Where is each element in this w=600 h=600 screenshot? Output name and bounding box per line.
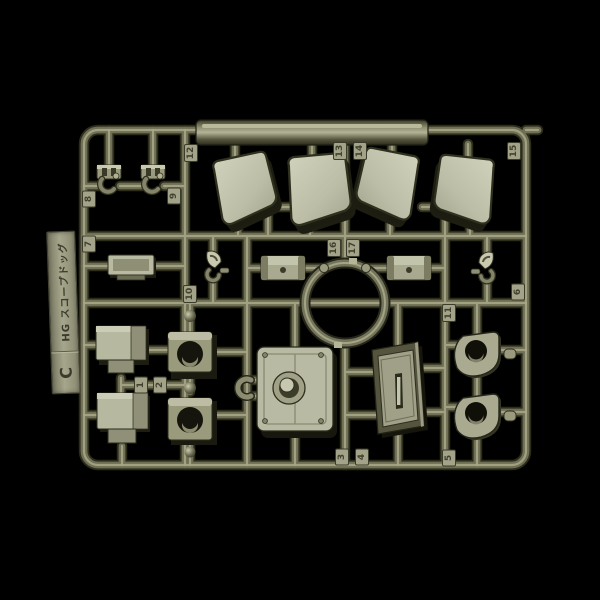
part-number-tag-9: 9 xyxy=(168,188,181,204)
dome-cover-part-2 xyxy=(454,394,516,440)
part-number-tag-2: 2 xyxy=(154,377,167,393)
part-number-tag-16: 16 xyxy=(328,240,341,257)
part-number-tag-10: 10 xyxy=(184,286,197,303)
part-number-tag-7: 7 xyxy=(83,236,96,252)
part-number-tag-8: 8 xyxy=(83,191,96,207)
part-number-tag-13: 13 xyxy=(334,143,347,160)
part-number-tag-6: 6 xyxy=(512,284,525,300)
svg-text:12: 12 xyxy=(186,147,196,160)
runner-label-tab: HG スコープドッグ C xyxy=(46,231,81,395)
ball-joint-block-part-2 xyxy=(168,398,217,445)
svg-text:7: 7 xyxy=(84,241,94,247)
thick-gate-bar xyxy=(196,120,428,145)
small-joint-figure-part-1 xyxy=(207,251,229,280)
part-number-tag-17: 17 xyxy=(347,240,360,257)
part-number-tag-1: 1 xyxy=(135,377,148,393)
svg-text:13: 13 xyxy=(335,145,345,158)
sprue-nub xyxy=(320,264,329,273)
part-number-tag-3: 3 xyxy=(336,449,349,465)
svg-text:2: 2 xyxy=(155,382,165,388)
part-number-tag-11: 11 xyxy=(443,305,456,322)
svg-text:3: 3 xyxy=(337,454,347,460)
ball-joint-block-part-1 xyxy=(168,332,217,379)
ball-joint xyxy=(185,447,196,458)
armor-plate-part-4 xyxy=(428,153,496,233)
part-number-tag-12: 12 xyxy=(185,145,198,162)
part-number-tag-15: 15 xyxy=(508,143,521,160)
equipment-tray-part xyxy=(108,255,156,280)
svg-text:8: 8 xyxy=(84,196,94,202)
ankle-armor-box-part-2 xyxy=(97,393,150,443)
small-joint-figure-part-2 xyxy=(471,252,493,281)
svg-text:17: 17 xyxy=(348,242,358,255)
svg-text:11: 11 xyxy=(444,307,454,320)
photo-stage: 12 13 14 15 8 9 7 10 16 17 6 11 1 2 3 4 … xyxy=(0,0,600,600)
svg-text:6: 6 xyxy=(513,289,523,295)
svg-text:15: 15 xyxy=(509,145,519,158)
svg-text:10: 10 xyxy=(185,288,195,301)
svg-text:16: 16 xyxy=(329,242,339,255)
ball-joint xyxy=(184,310,196,322)
svg-text:9: 9 xyxy=(169,193,179,199)
label-series-area: HG スコープドッグ xyxy=(47,232,78,353)
ankle-armor-box-part-1 xyxy=(96,326,149,373)
label-series-text: HG スコープドッグ xyxy=(54,242,72,342)
forearm-bracket-part-2 xyxy=(387,256,431,280)
svg-text:14: 14 xyxy=(355,145,365,158)
sprue-runner-photo: 12 13 14 15 8 9 7 10 16 17 6 11 1 2 3 4 … xyxy=(0,0,600,600)
side-door-part xyxy=(372,342,428,438)
runner-letter-box: C xyxy=(51,352,79,393)
runner-letter: C xyxy=(56,366,75,378)
svg-text:5: 5 xyxy=(444,455,454,461)
part-number-tag-14: 14 xyxy=(354,143,367,160)
part-number-tag-5: 5 xyxy=(443,450,456,466)
sprue-nub xyxy=(362,264,371,273)
cockpit-hatch-part xyxy=(257,347,337,438)
dome-cover-part-1 xyxy=(454,332,516,378)
svg-text:4: 4 xyxy=(357,454,367,460)
part-number-tag-4: 4 xyxy=(356,449,369,465)
ball-joint xyxy=(184,382,196,394)
forearm-bracket-part-1 xyxy=(261,256,305,280)
svg-text:1: 1 xyxy=(136,382,146,388)
